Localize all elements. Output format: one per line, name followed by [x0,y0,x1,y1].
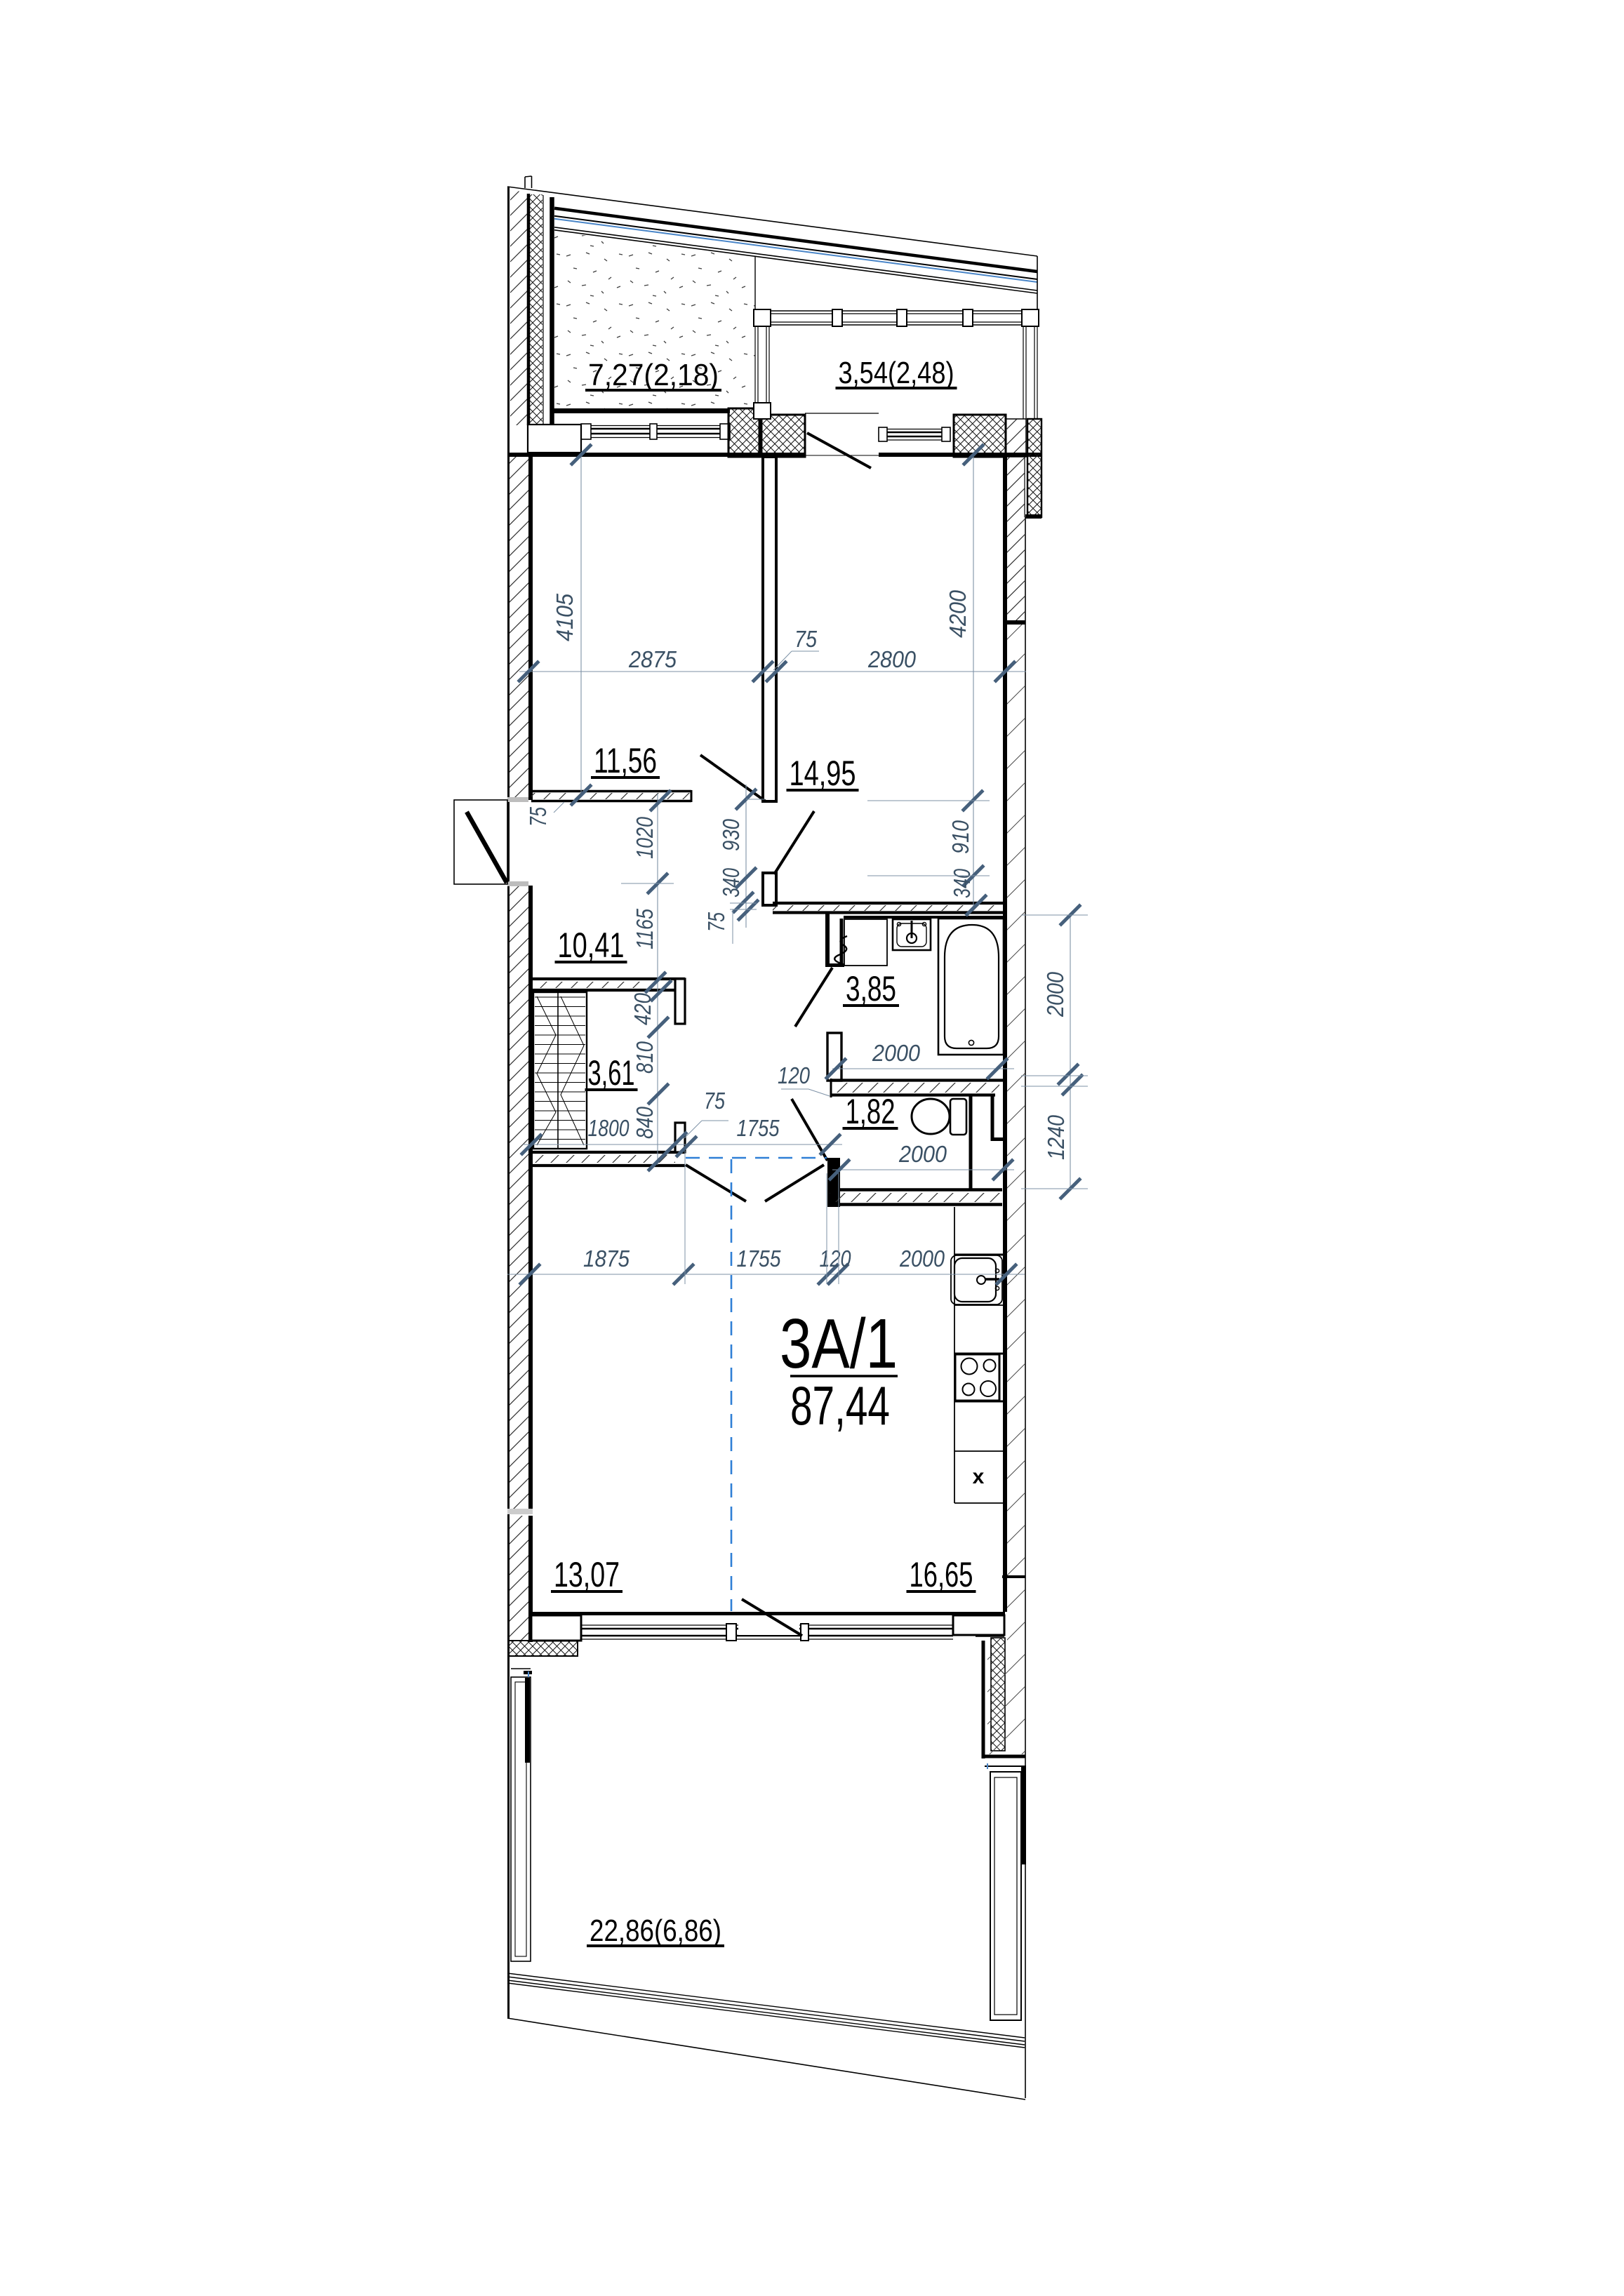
svg-text:2000: 2000 [1042,971,1068,1017]
svg-text:340: 340 [718,868,744,897]
svg-text:1020: 1020 [632,816,658,859]
svg-text:840: 840 [632,1106,658,1139]
svg-text:11,56: 11,56 [594,741,657,780]
svg-text:2000: 2000 [898,1141,947,1167]
svg-text:1755: 1755 [737,1115,780,1141]
svg-text:2800: 2800 [867,646,917,672]
svg-text:10,41: 10,41 [558,926,625,965]
svg-text:420: 420 [630,992,655,1025]
svg-text:13,07: 13,07 [554,1555,620,1594]
svg-text:87,44: 87,44 [790,1375,890,1436]
svg-text:2875: 2875 [628,646,677,672]
svg-text:1755: 1755 [737,1246,782,1272]
svg-text:930: 930 [718,818,744,851]
svg-text:3,85: 3,85 [846,969,896,1008]
svg-text:120: 120 [778,1062,811,1088]
svg-text:75: 75 [704,1088,726,1114]
svg-text:1165: 1165 [632,908,658,949]
svg-text:3А/1: 3А/1 [780,1304,898,1383]
svg-text:x: x [973,1465,985,1488]
svg-text:1800: 1800 [588,1115,630,1141]
svg-text:75: 75 [525,807,551,827]
svg-text:22,86(6,86): 22,86(6,86) [590,1914,721,1948]
svg-text:14,95: 14,95 [790,754,856,793]
svg-text:1240: 1240 [1043,1114,1069,1160]
svg-text:75: 75 [703,912,729,932]
svg-text:1875: 1875 [583,1246,630,1272]
svg-text:2000: 2000 [899,1246,945,1272]
svg-text:810: 810 [632,1041,658,1074]
svg-text:3,61: 3,61 [588,1053,635,1093]
svg-text:340: 340 [949,869,975,898]
svg-text:16,65: 16,65 [910,1555,973,1594]
svg-text:120: 120 [820,1246,852,1272]
svg-text:7,27(2,18): 7,27(2,18) [588,358,719,392]
svg-text:4105: 4105 [552,593,578,641]
svg-text:910: 910 [947,820,973,854]
svg-text:75: 75 [794,626,818,652]
svg-text:2000: 2000 [872,1040,921,1066]
svg-text:4200: 4200 [945,589,971,638]
svg-text:3,54(2,48): 3,54(2,48) [839,356,954,390]
svg-text:1,82: 1,82 [846,1092,896,1131]
